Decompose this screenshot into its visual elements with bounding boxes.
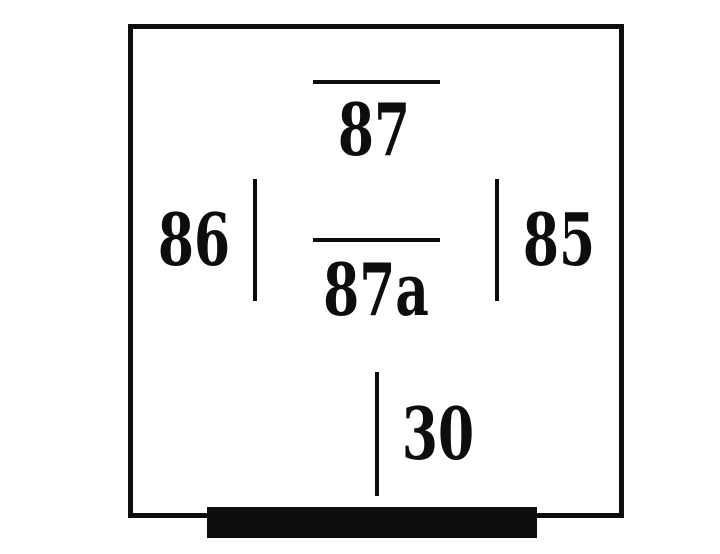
relay-pinout-diagram: 87 86 85 87a 30: [0, 0, 720, 554]
pin-30-label: 30: [380, 398, 495, 470]
pin-87a-label: 87a: [318, 254, 433, 326]
pin-30-contact-line: [375, 372, 379, 496]
pin-85-label: 85: [501, 204, 616, 276]
pin-87-label: 87: [316, 94, 431, 166]
pin-85-contact-line: [495, 179, 499, 301]
pin-87-contact-line: [313, 80, 440, 84]
relay-base-bar: [207, 507, 537, 538]
pin-86-contact-line: [253, 179, 257, 301]
pin-87a-contact-line: [313, 238, 440, 242]
pin-86-label: 86: [136, 204, 251, 276]
